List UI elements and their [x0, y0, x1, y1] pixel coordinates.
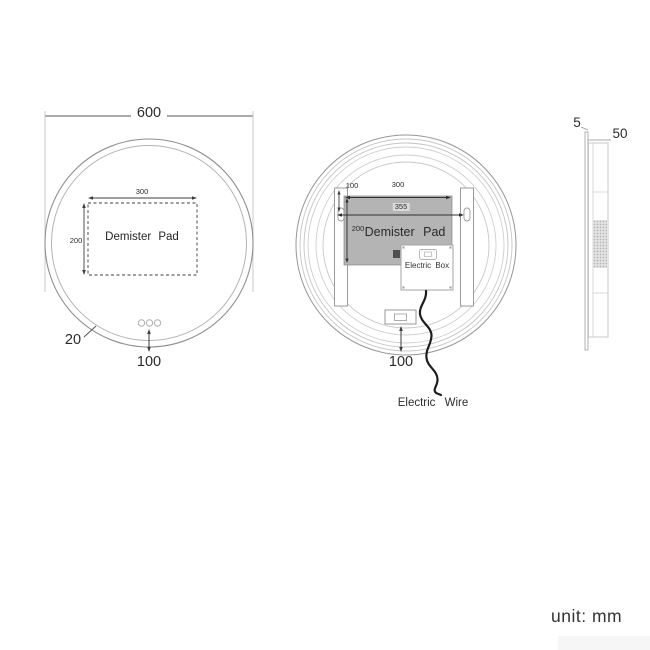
- hanging-bracket-right: [461, 188, 474, 306]
- corner-watermark-area: [558, 636, 650, 650]
- touch-sensor-icon: [146, 320, 152, 326]
- back-pad-height-label: 200: [352, 225, 365, 233]
- corner-mark: [403, 287, 405, 289]
- keyhole-slot-right: [464, 208, 470, 221]
- arrowhead: [399, 326, 403, 331]
- touch-sensor-icon: [154, 320, 160, 326]
- bracket-span-label: 355: [393, 203, 410, 211]
- side-demister-hatch: [593, 220, 607, 268]
- back-demister-pad-label: Demister Pad: [365, 226, 446, 240]
- front-diameter-label: 600: [137, 106, 161, 122]
- unit-note: unit: mm: [551, 606, 622, 627]
- front-sensor-offset-label: 100: [137, 355, 161, 371]
- arrowhead: [82, 270, 86, 275]
- back-switch-offset-label: 100: [389, 355, 413, 371]
- arrowhead: [82, 203, 86, 208]
- diagram-linework: [0, 0, 650, 650]
- back-hanger-offset-label: 100: [346, 182, 359, 190]
- touch-sensor-icon: [138, 320, 144, 326]
- switch-housing: [385, 310, 416, 324]
- front-pad-width-label: 300: [136, 188, 149, 196]
- electric-box-label: Electric Box: [405, 262, 449, 271]
- back-pad-width-label: 300: [392, 181, 405, 189]
- corner-mark: [450, 247, 452, 249]
- arrowhead: [88, 196, 93, 200]
- glass-thickness-leader: [581, 127, 588, 130]
- arrowhead: [192, 196, 197, 200]
- mirror-glass-profile: [585, 132, 588, 350]
- corner-mark: [403, 247, 405, 249]
- power-connector-icon: [420, 250, 437, 260]
- front-edge-width-label: 20: [65, 333, 81, 349]
- electric-wire-label: Electric Wire: [398, 397, 469, 410]
- glass-thickness-label: 5: [573, 116, 581, 131]
- electric-wire: [420, 291, 441, 395]
- corner-mark: [450, 287, 452, 289]
- front-pad-height-label: 200: [70, 237, 83, 245]
- mirror-spec-diagram: 600 300 200 Demister Pad 20 100 100 300 …: [0, 0, 650, 650]
- frame-depth-label: 50: [612, 127, 627, 142]
- arrowhead: [147, 329, 151, 334]
- pad-connector-icon: [393, 250, 400, 258]
- front-demister-pad-label: Demister Pad: [105, 231, 179, 244]
- arrowhead: [147, 347, 151, 352]
